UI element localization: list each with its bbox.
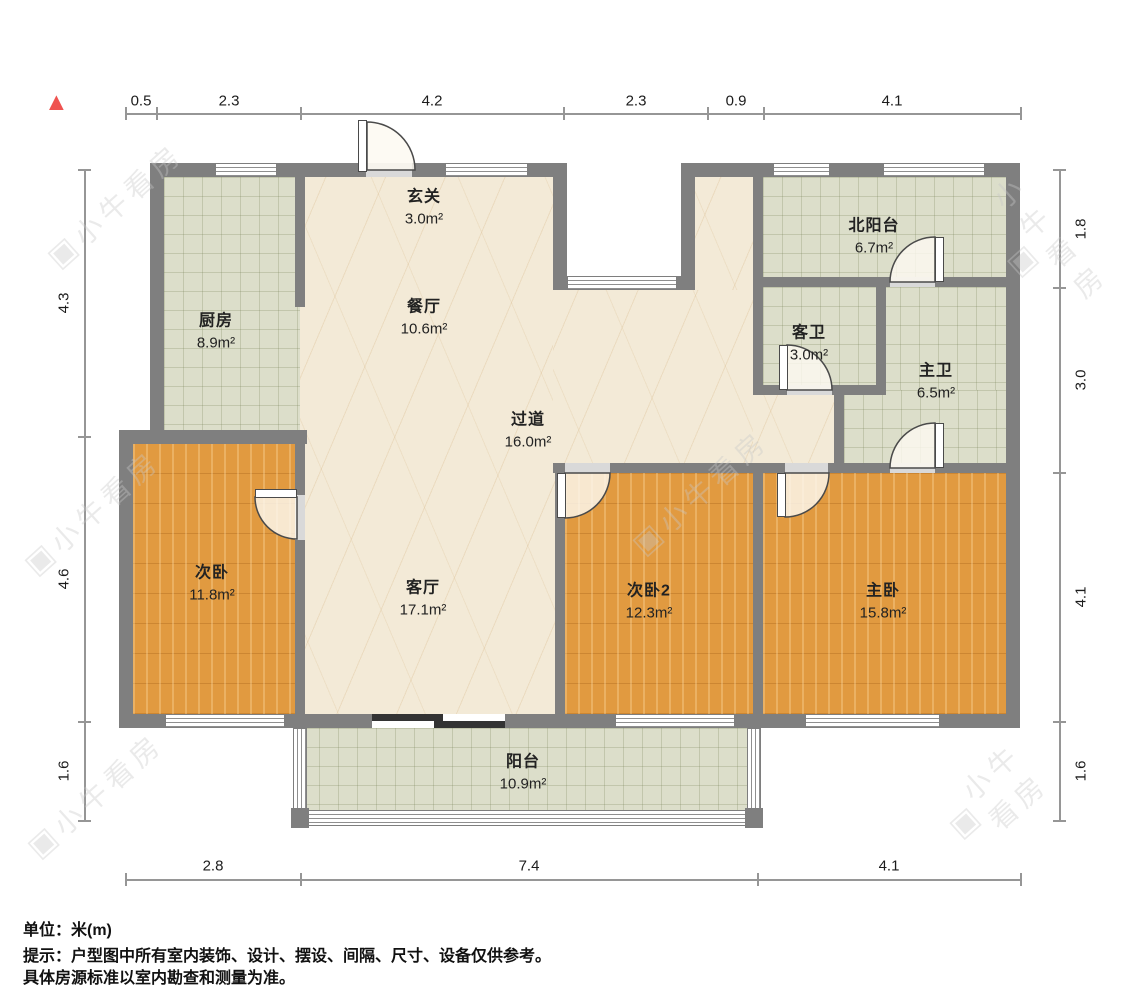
watermark-logo-icon: ▣ — [40, 230, 84, 275]
room-area: 15.8m² — [860, 605, 907, 622]
sliding-door-panel — [372, 714, 443, 721]
wall — [119, 430, 307, 444]
dim-tick — [763, 107, 765, 120]
floorplan-canvas: ▲ — [0, 0, 1125, 999]
footnote-tip2: 具体房源标准以室内勘查和测量为准。 — [23, 964, 295, 988]
dimension-line-bottom — [126, 879, 1021, 881]
wall — [553, 163, 567, 290]
room-name: 餐厅 — [401, 293, 448, 317]
room-area: 10.9m² — [500, 776, 547, 793]
wall — [295, 170, 305, 307]
balcony-glass-wall — [747, 728, 761, 812]
watermark: ▣ 小牛看房 — [18, 723, 171, 867]
room-name: 厨房 — [197, 307, 235, 331]
dimension-line-left — [84, 170, 86, 821]
dim-label: 4.1 — [1073, 587, 1090, 608]
floor-vestibule — [753, 385, 839, 468]
room-name: 客厅 — [400, 574, 447, 598]
dim-tick — [78, 820, 91, 822]
dim-label: 0.5 — [131, 93, 152, 110]
room-label-hallway: 过道 16.0m² — [505, 406, 552, 451]
room-label-guest-bath: 客卫 3.0m² — [790, 319, 828, 364]
dim-tick — [78, 721, 91, 723]
balcony-corner-post — [745, 808, 763, 828]
dimension-line-right — [1059, 170, 1061, 821]
room-name: 过道 — [505, 406, 552, 430]
dim-label: 1.6 — [56, 761, 73, 782]
wall — [295, 437, 305, 722]
dim-label: 2.3 — [219, 93, 240, 110]
watermark-text: 小牛看房 — [44, 723, 172, 844]
floor-corridor — [695, 170, 753, 290]
dim-tick — [78, 169, 91, 171]
dim-tick — [78, 436, 91, 438]
window — [773, 163, 830, 177]
footnote-tip: 提示：户型图中所有室内装饰、设计、摆设、间隔、尺寸、设备仅供参考。 — [23, 942, 551, 966]
dim-tick — [1053, 169, 1066, 171]
room-area: 12.3m² — [626, 605, 673, 622]
dim-tick — [1020, 107, 1022, 120]
dim-label: 3.0 — [1073, 370, 1090, 391]
balcony-glass-wall — [293, 728, 307, 812]
dim-label: 2.3 — [626, 93, 647, 110]
door-leaf — [935, 237, 944, 282]
window — [165, 714, 285, 728]
room-label-entry: 玄关 3.0m² — [405, 183, 443, 228]
watermark: ▣ 小牛看房 — [927, 718, 1073, 861]
room-area: 16.0m² — [505, 434, 552, 451]
door-opening — [890, 277, 935, 287]
north-arrow-icon: ▲ — [44, 90, 69, 115]
room-name: 次卧 — [189, 559, 235, 583]
door-leaf — [255, 489, 297, 498]
window — [805, 714, 940, 728]
wall — [681, 163, 695, 290]
room-area: 6.7m² — [848, 240, 899, 257]
dimension-line-top — [126, 113, 1021, 115]
dim-tick — [1053, 721, 1066, 723]
dim-tick — [707, 107, 709, 120]
room-label-master-bath: 主卫 6.5m² — [917, 357, 955, 402]
room-label-kitchen: 厨房 8.9m² — [197, 307, 235, 352]
floor-hallway — [553, 282, 760, 468]
dim-label: 2.8 — [203, 858, 224, 875]
room-name: 北阳台 — [848, 212, 899, 236]
door-opening — [565, 463, 610, 473]
door-leaf — [557, 473, 566, 518]
room-label-north-balcony: 北阳台 6.7m² — [848, 212, 899, 257]
window — [445, 163, 528, 177]
room-area: 8.9m² — [197, 335, 235, 352]
dim-tick — [300, 107, 302, 120]
dim-tick — [563, 107, 565, 120]
dim-label: 7.4 — [519, 858, 540, 875]
wall — [150, 163, 164, 444]
dim-label: 0.9 — [726, 93, 747, 110]
room-name: 客卫 — [790, 319, 828, 343]
room-label-dining: 餐厅 10.6m² — [401, 293, 448, 338]
room-label-master-bedroom: 主卧 15.8m² — [860, 577, 907, 622]
door-opening — [890, 463, 935, 473]
dim-label: 4.1 — [882, 93, 903, 110]
wall — [119, 430, 133, 728]
dim-tick — [300, 873, 302, 886]
room-name: 主卫 — [917, 357, 955, 381]
dim-label: 4.6 — [56, 569, 73, 590]
dim-tick — [1053, 472, 1066, 474]
room-area: 3.0m² — [405, 211, 443, 228]
room-name: 次卧2 — [626, 577, 673, 601]
window — [615, 714, 735, 728]
room-name: 主卧 — [860, 577, 907, 601]
room-area: 11.8m² — [189, 587, 235, 604]
door-leaf — [935, 423, 944, 468]
dim-tick — [1020, 873, 1022, 886]
dim-tick — [1053, 820, 1066, 822]
watermark-logo-icon: ▣ — [942, 800, 986, 845]
window — [883, 163, 985, 177]
floor-master-bath-lower — [844, 390, 1006, 468]
wall — [876, 282, 886, 392]
door-leaf — [358, 120, 367, 172]
door-opening — [366, 163, 412, 177]
door-opening — [785, 463, 828, 473]
dim-label: 1.8 — [1073, 219, 1090, 240]
room-area: 10.6m² — [401, 321, 448, 338]
dim-tick — [1053, 287, 1066, 289]
balcony-glass-wall — [307, 810, 749, 826]
dim-tick — [125, 107, 127, 120]
wall — [834, 385, 844, 473]
footnote-unit: 单位：米(m) — [23, 916, 112, 940]
wall — [753, 463, 763, 722]
dim-label: 4.1 — [879, 858, 900, 875]
window — [567, 276, 677, 290]
wall — [753, 170, 763, 395]
balcony-corner-post — [291, 808, 309, 828]
door-opening — [295, 495, 305, 540]
room-label-living: 客厅 17.1m² — [400, 574, 447, 619]
room-name: 阳台 — [500, 748, 547, 772]
wall — [1006, 163, 1020, 728]
door-opening — [787, 385, 832, 395]
room-area: 17.1m² — [400, 602, 447, 619]
room-name: 玄关 — [405, 183, 443, 207]
dim-tick — [125, 873, 127, 886]
room-area: 3.0m² — [790, 347, 828, 364]
room-area: 6.5m² — [917, 385, 955, 402]
room-label-balcony: 阳台 10.9m² — [500, 748, 547, 793]
window — [215, 163, 277, 177]
door-leaf — [777, 473, 786, 517]
dim-tick — [757, 873, 759, 886]
watermark-logo-icon: ▣ — [20, 820, 64, 865]
room-label-bedroom-2: 次卧 11.8m² — [189, 559, 235, 604]
door-leaf — [779, 345, 788, 390]
dim-tick — [156, 107, 158, 120]
dim-label: 4.3 — [56, 293, 73, 314]
dim-label: 1.6 — [1073, 761, 1090, 782]
dim-label: 4.2 — [422, 93, 443, 110]
sliding-door-panel — [434, 721, 505, 728]
room-label-bedroom-3: 次卧2 12.3m² — [626, 577, 673, 622]
